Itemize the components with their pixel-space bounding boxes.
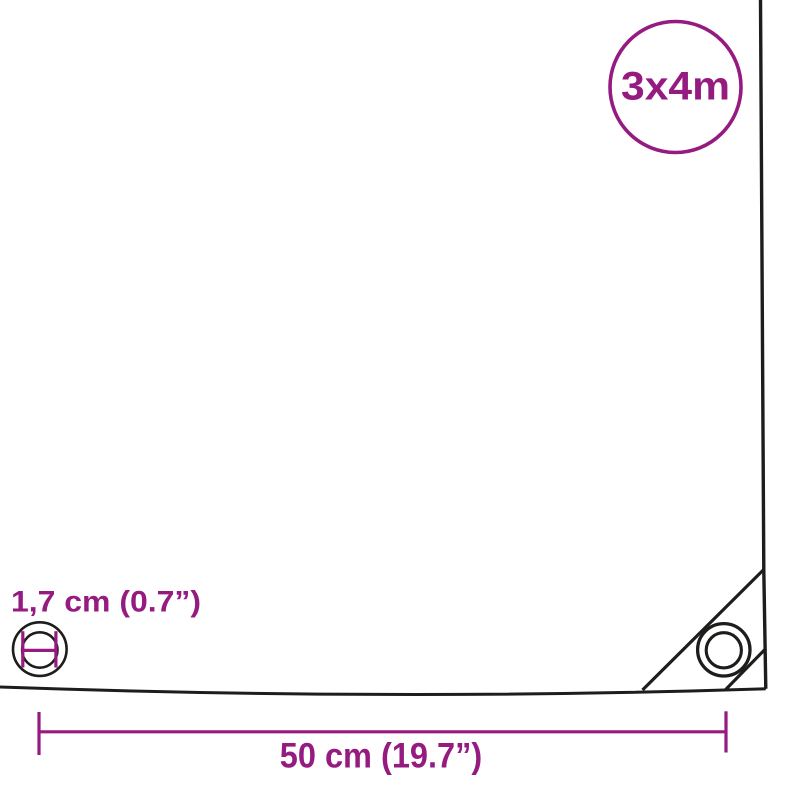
svg-text:1,7 cm (0.7”): 1,7 cm (0.7”) [11,586,201,619]
svg-text:3x4m: 3x4m [621,65,730,109]
svg-text:50 cm (19.7”): 50 cm (19.7”) [280,737,483,776]
